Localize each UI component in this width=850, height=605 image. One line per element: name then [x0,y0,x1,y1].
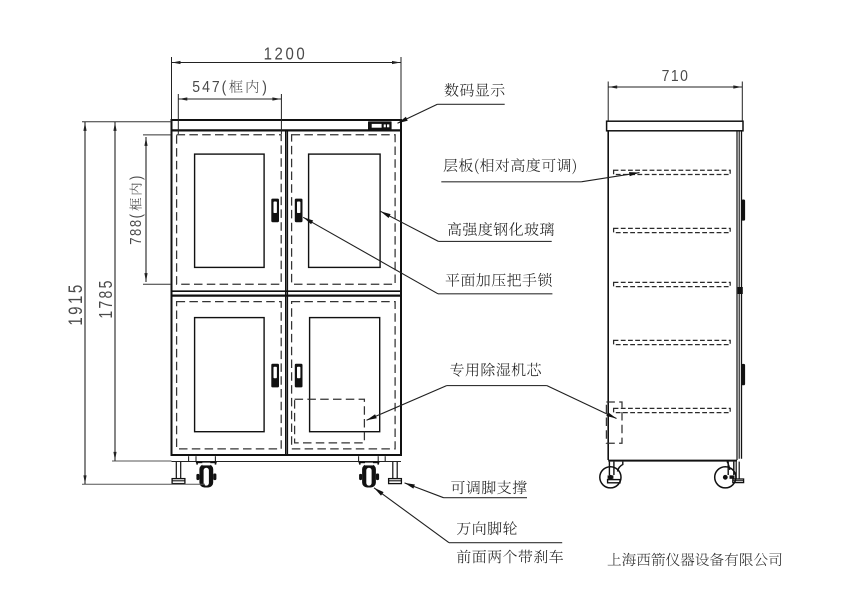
svg-text:788(: 788( [128,212,145,244]
svg-text:1915: 1915 [64,282,86,325]
svg-text:): ) [262,78,267,96]
svg-text:547(: 547( [192,78,228,96]
svg-text:710: 710 [662,67,690,85]
svg-text:): ) [128,176,145,180]
svg-text:1200: 1200 [264,45,308,64]
svg-text:1785: 1785 [95,278,117,318]
